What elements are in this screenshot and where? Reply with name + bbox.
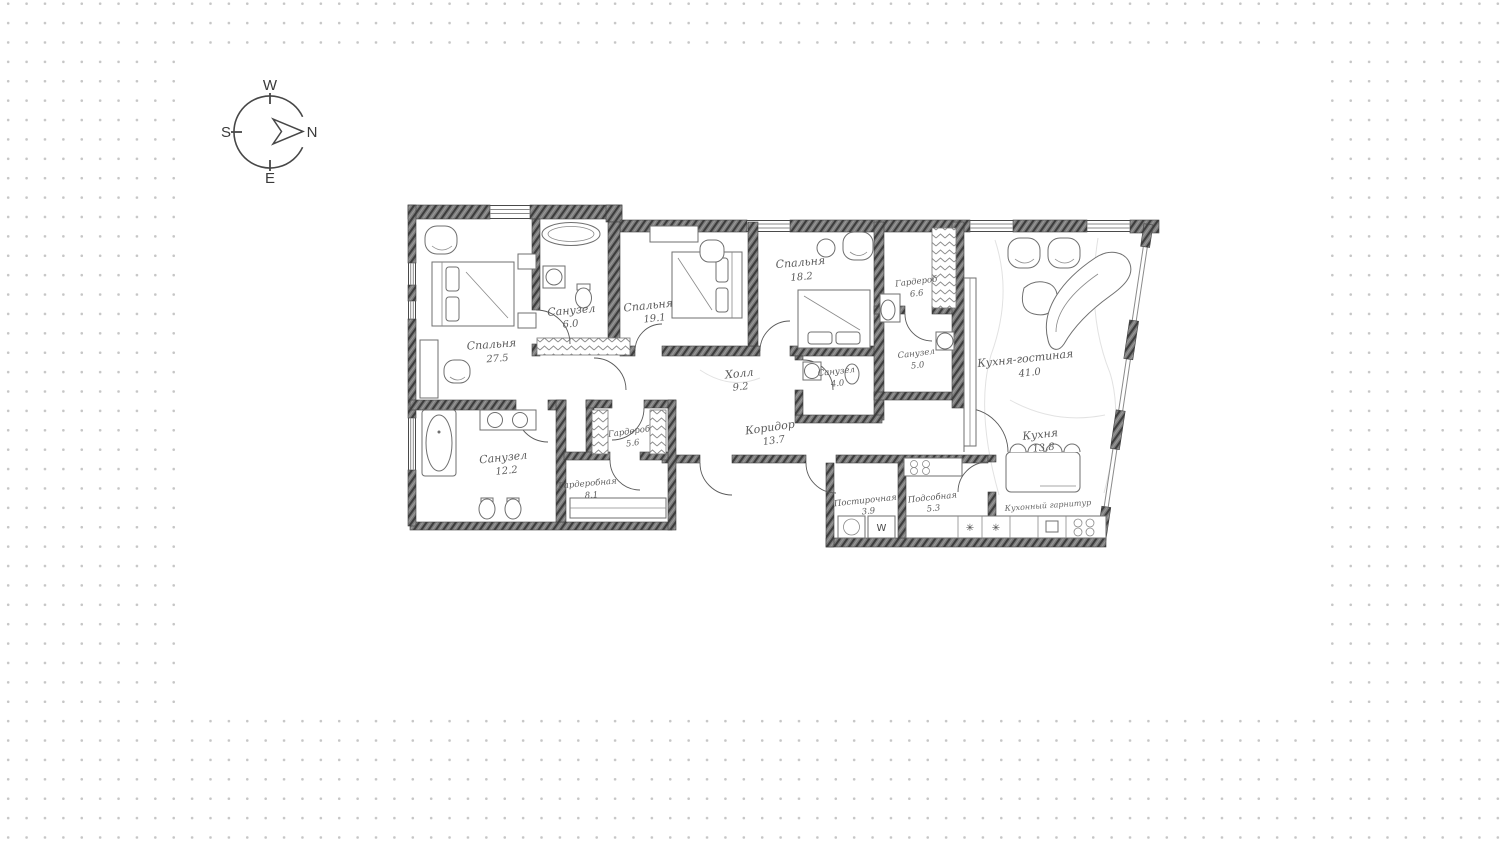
svg-text:6.6: 6.6	[909, 288, 924, 300]
window	[1087, 221, 1130, 232]
entrance-door-arc	[700, 463, 732, 495]
window	[409, 418, 416, 470]
room-label-utility: Подсобная 5.3	[906, 489, 959, 516]
chair-icon	[444, 360, 470, 383]
svg-text:5.6: 5.6	[625, 438, 640, 450]
svg-text:Санузел: Санузел	[479, 449, 528, 467]
svg-text:41.0: 41.0	[1017, 367, 1042, 380]
wardrobe-hatch	[650, 410, 666, 454]
pillow-icon	[716, 288, 728, 312]
room-label-wardrobe-2: Гардероб 5.6	[606, 423, 653, 452]
door-arc	[635, 324, 662, 351]
pillow-icon	[808, 332, 832, 344]
sink-icon	[488, 413, 503, 428]
window	[409, 263, 416, 285]
sink-icon	[937, 333, 953, 349]
armchair-icon	[1008, 238, 1040, 268]
toilet-icon	[881, 300, 895, 320]
room-label-kitchen-living: Кухня-гостиная 41.0	[976, 347, 1076, 384]
compass-label-bottom: E	[265, 170, 275, 187]
door-arc	[905, 314, 932, 341]
compass-needle-icon	[273, 119, 303, 144]
svg-text:18.2: 18.2	[790, 271, 813, 284]
svg-text:5.0: 5.0	[910, 360, 925, 372]
door-arc	[594, 358, 626, 390]
compass-label-left: S	[221, 124, 231, 141]
svg-text:6.0: 6.0	[562, 318, 579, 330]
svg-text:Кухня: Кухня	[1021, 426, 1059, 443]
room-label-hall: Холл 9.2	[723, 366, 755, 395]
wardrobe-hatch	[537, 338, 630, 355]
pillow-icon	[836, 332, 860, 344]
wardrobe-hatch	[592, 410, 608, 454]
nightstand-icon	[518, 254, 536, 269]
svg-text:Гардероб: Гардероб	[606, 423, 651, 440]
svg-text:Санузел: Санузел	[547, 302, 596, 319]
room-label-bath-2: Санузел 5.0	[897, 347, 937, 373]
svg-text:Спальня: Спальня	[466, 336, 516, 352]
floorplan-svg: W N S E	[0, 0, 1500, 842]
window	[970, 221, 1013, 232]
sink-icon	[513, 413, 528, 428]
svg-text:9.2: 9.2	[732, 381, 749, 394]
freezer-symbol: ✳	[966, 523, 974, 534]
svg-text:Кухонный гарнитур: Кухонный гарнитур	[1003, 498, 1091, 513]
svg-text:19.1: 19.1	[643, 312, 666, 325]
wardrobe-hatch	[932, 228, 956, 308]
furniture-bedroom-3	[798, 232, 873, 348]
compass-rose: W N S E	[221, 77, 317, 187]
compass-label-top: W	[263, 77, 278, 94]
furniture-bath-1	[542, 223, 600, 309]
sink-icon	[1046, 521, 1058, 532]
svg-text:Коридор: Коридор	[743, 418, 795, 438]
annotation-kitchen-set: Кухонный гарнитур	[1003, 498, 1091, 513]
pillow-icon	[446, 297, 459, 321]
pillow-icon	[446, 267, 459, 291]
room-label-bedroom-1: Спальня 27.5	[466, 336, 517, 366]
room-label-bath-4: Санузел 12.2	[479, 449, 530, 480]
svg-text:27.5: 27.5	[485, 353, 509, 366]
furniture-bedroom-1	[420, 226, 536, 398]
chair-icon	[1010, 444, 1026, 452]
nightstand-icon	[518, 313, 536, 328]
room-label-kitchen: Кухня 13.8	[1021, 426, 1060, 456]
room-label-bedroom-2: Спальня 19.1	[623, 296, 675, 327]
svg-text:3.9: 3.9	[861, 506, 876, 517]
armchair-icon	[1048, 238, 1080, 268]
svg-text:Санузел: Санузел	[897, 347, 935, 361]
door-arc	[760, 321, 790, 351]
svg-text:Кухня-гостиная: Кухня-гостиная	[976, 347, 1074, 370]
room-label-corridor: Коридор 13.7	[743, 418, 797, 451]
svg-text:5.3: 5.3	[926, 503, 941, 514]
room-label-bedroom-3: Спальня 18.2	[775, 254, 827, 285]
bathtub-icon	[542, 223, 600, 246]
bidet-icon	[505, 499, 521, 519]
sink-icon	[546, 269, 562, 285]
svg-text:4.0: 4.0	[829, 378, 845, 390]
svg-text:13.8: 13.8	[1032, 442, 1055, 455]
wardrobe-hatching	[537, 228, 956, 454]
svg-text:Спальня: Спальня	[775, 254, 826, 271]
svg-text:13.7: 13.7	[762, 434, 786, 448]
svg-text:Спальня: Спальня	[623, 296, 674, 314]
fridge-symbol: ✳	[992, 523, 1000, 534]
washer-label: W	[877, 523, 887, 534]
bathtub-icon	[426, 415, 452, 471]
compass-label-right: N	[307, 124, 318, 141]
bed-icon	[432, 262, 514, 326]
window	[409, 301, 416, 319]
toilet-icon	[479, 499, 495, 519]
furniture-utility	[904, 458, 962, 476]
svg-text:12.2: 12.2	[495, 465, 518, 478]
kitchen-counter: ✳ ✳	[906, 516, 1106, 538]
svg-text:8.1: 8.1	[584, 490, 598, 501]
svg-text:Холл: Холл	[723, 366, 754, 382]
chair-icon	[700, 240, 724, 262]
desk-icon	[650, 226, 698, 242]
room-label-bath-1: Санузел 6.0	[547, 302, 597, 332]
desk-icon	[420, 340, 438, 398]
window	[490, 206, 530, 219]
chair-icon	[1064, 444, 1080, 452]
furniture-laundry: W	[838, 516, 895, 538]
